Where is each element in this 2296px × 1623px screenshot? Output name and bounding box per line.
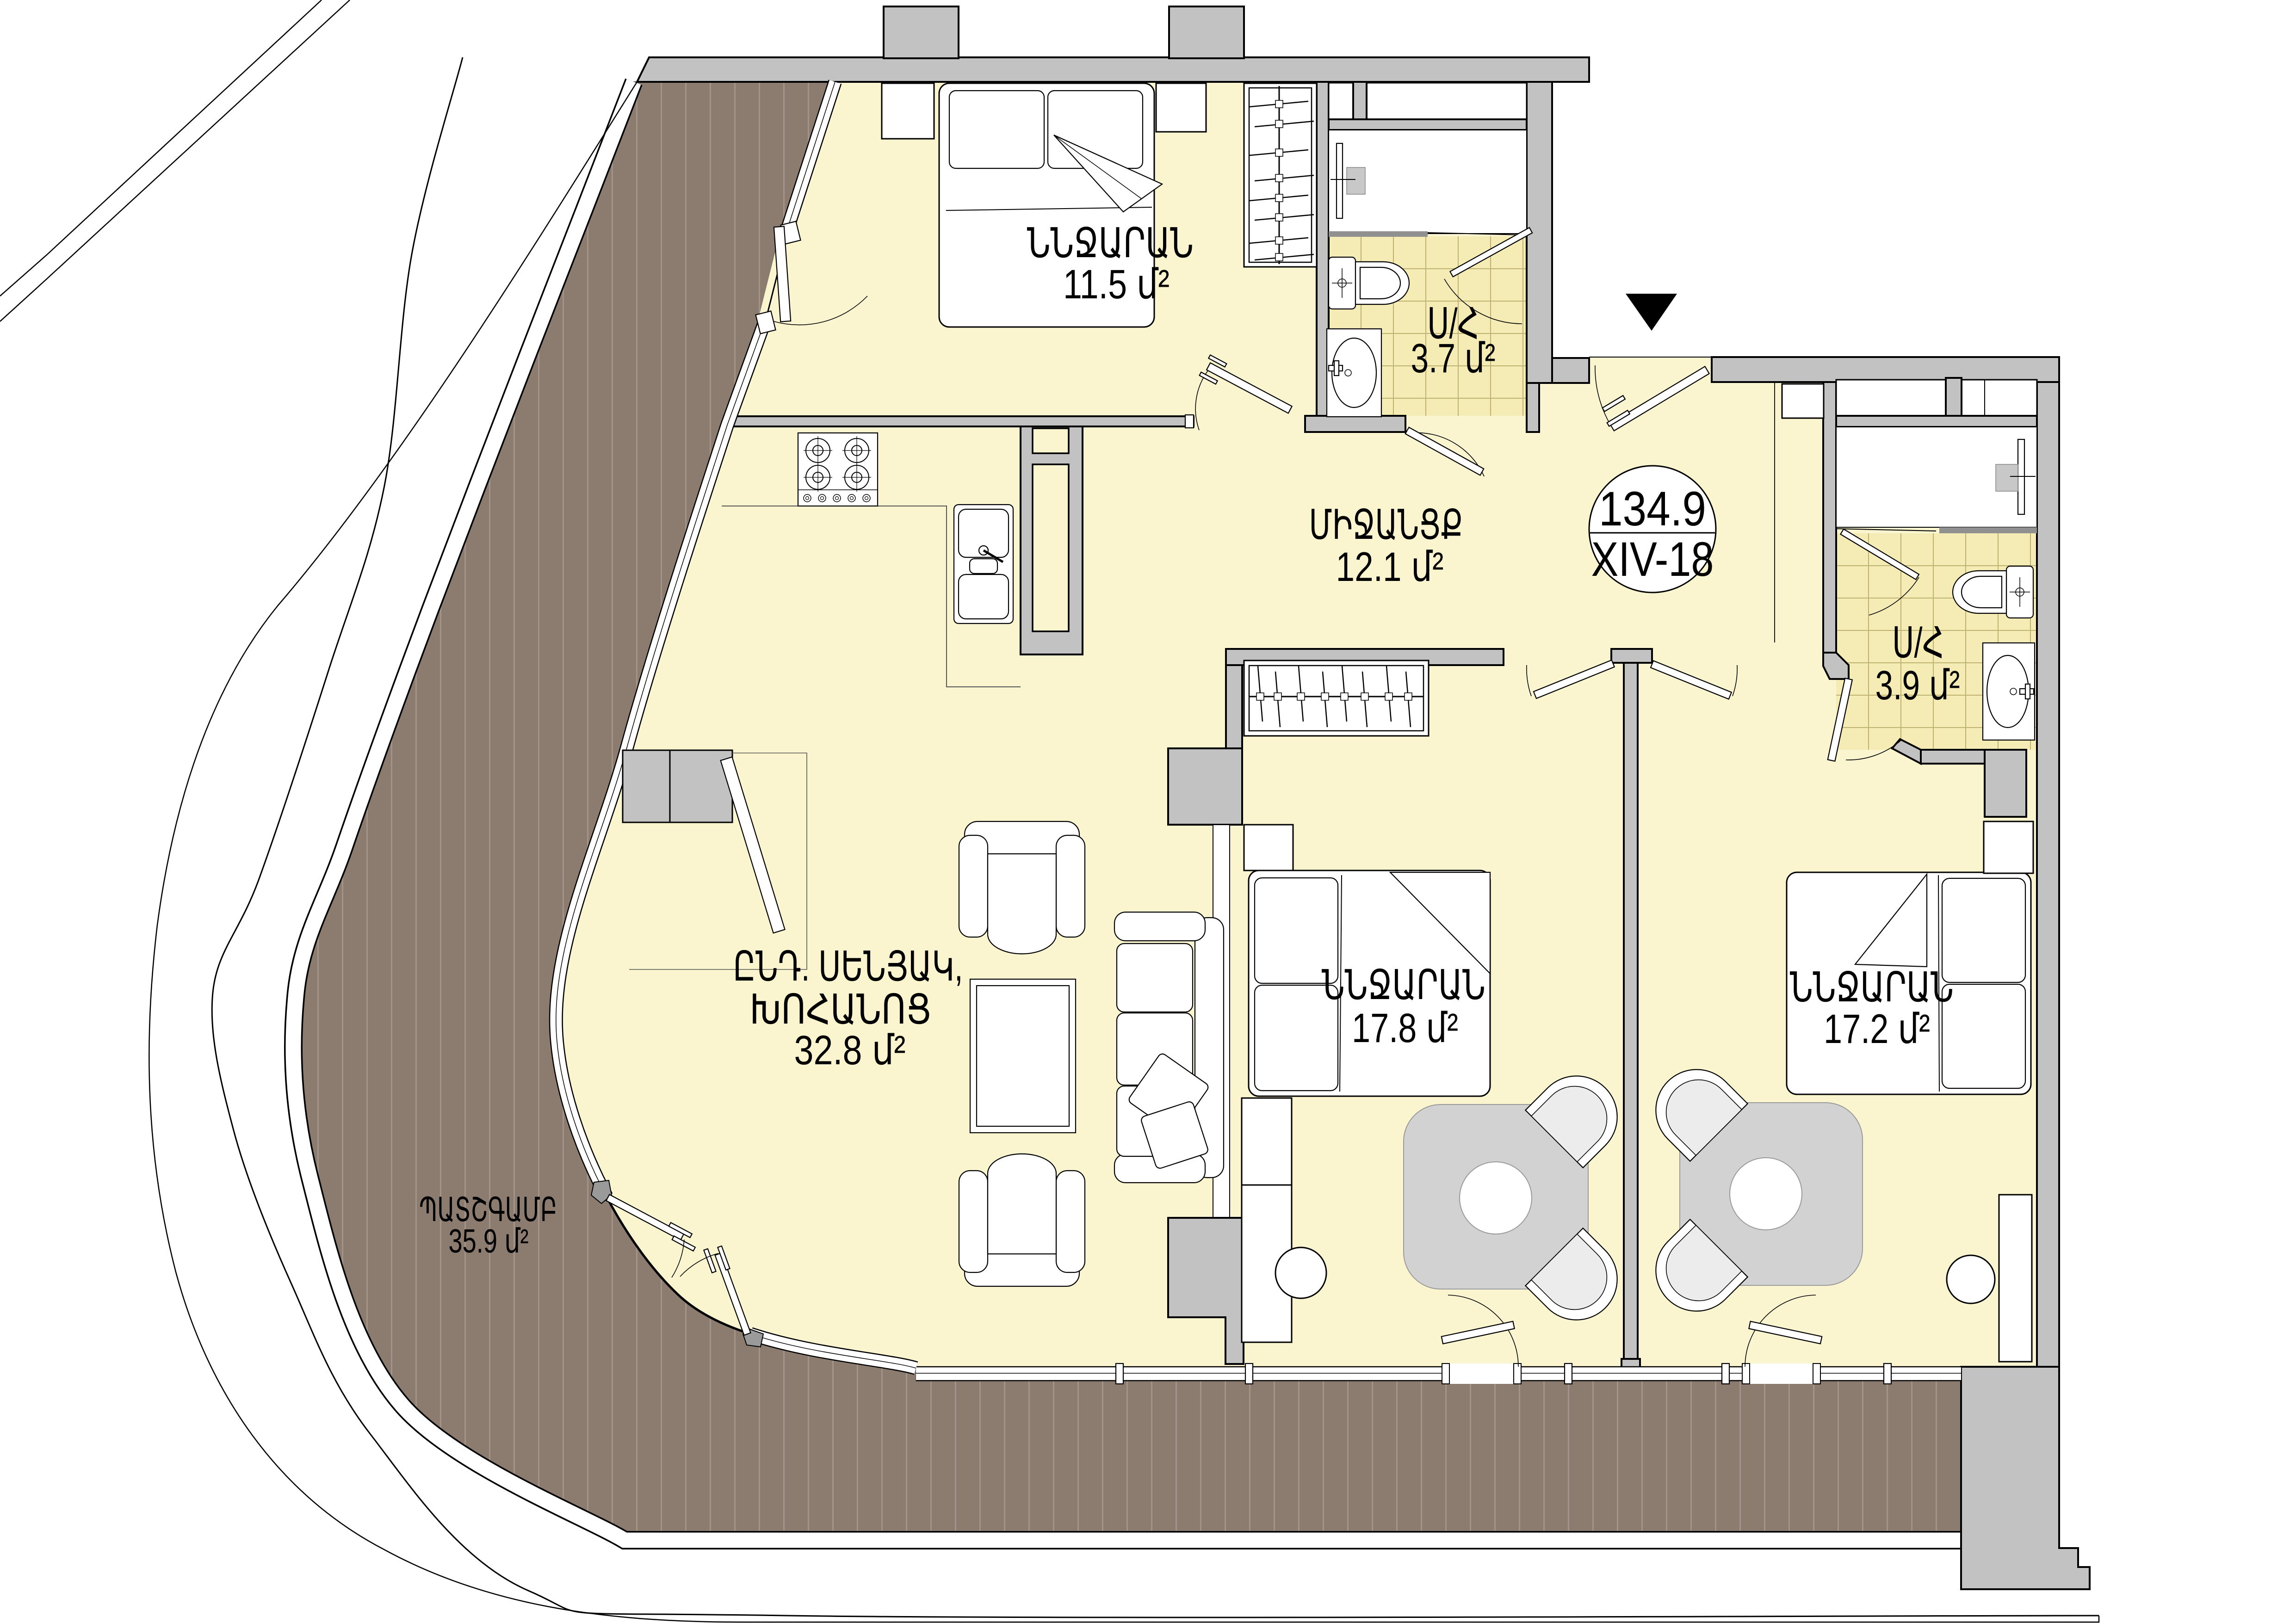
svg-text:ՄԻՋԱՆՑՔ: ՄԻՋԱՆՑՔ: [1309, 501, 1463, 548]
svg-text:11.5 մ²: 11.5 մ²: [1063, 261, 1170, 307]
svg-text:3.7 մ²: 3.7 մ²: [1411, 335, 1496, 381]
svg-text:35.9 մ²: 35.9 մ²: [449, 1223, 529, 1260]
svg-text:17.8 մ²: 17.8 մ²: [1352, 1005, 1458, 1051]
svg-text:ԽՈՀԱՆՈՑ: ԽՈՀԱՆՈՑ: [750, 986, 932, 1032]
svg-text:17.2 մ²: 17.2 մ²: [1824, 1006, 1930, 1052]
svg-text:32.8 մ²: 32.8 մ²: [794, 1027, 906, 1073]
svg-text:Ս/Հ: Ս/Հ: [1892, 619, 1944, 666]
svg-text:134.9: 134.9: [1599, 482, 1706, 536]
svg-text:ՆՆՋԱՐԱՆ: ՆՆՋԱՐԱՆ: [1790, 964, 1954, 1010]
svg-text:XIV-18: XIV-18: [1591, 532, 1714, 586]
svg-text:12.1 մ²: 12.1 մ²: [1336, 543, 1444, 590]
svg-text:ՆՆՋԱՐԱՆ: ՆՆՋԱՐԱՆ: [1322, 962, 1485, 1008]
svg-text:ՆՆՋԱՐԱՆ: ՆՆՋԱՐԱՆ: [1027, 220, 1194, 266]
svg-text:ԸՆԴ. ՍԵՆՅԱԿ,: ԸՆԴ. ՍԵՆՅԱԿ,: [733, 943, 963, 989]
svg-text:3.9 մ²: 3.9 մ²: [1875, 662, 1960, 708]
